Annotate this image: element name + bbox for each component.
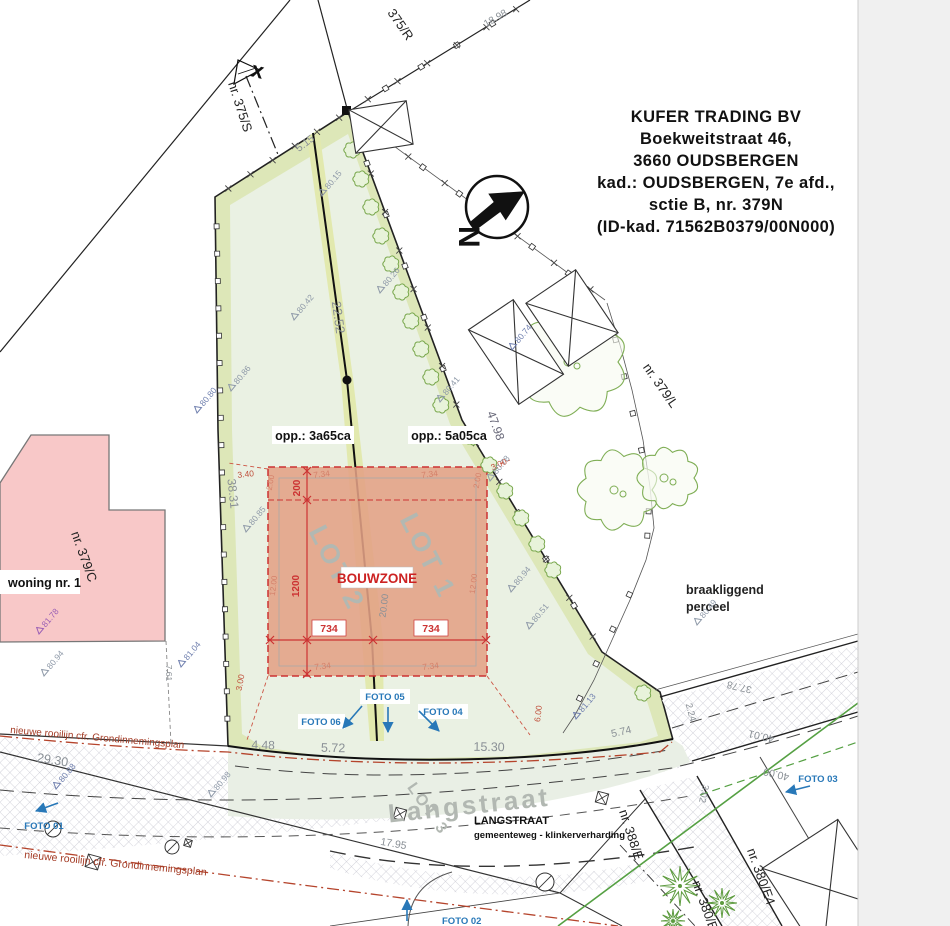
bush-icon bbox=[635, 685, 651, 701]
bush-icon bbox=[393, 284, 409, 300]
fence-post bbox=[216, 333, 221, 338]
bz-off-600: 6.00 bbox=[532, 705, 544, 723]
fence-post bbox=[214, 224, 219, 229]
drain-icon bbox=[184, 839, 193, 848]
title-line-4: kad.: OUDSBERGEN, 7e afd., bbox=[597, 174, 835, 192]
fence-post bbox=[218, 388, 223, 393]
site-plan-page: x N KUFER TRADING BV Boekweitstraat 46, … bbox=[0, 0, 950, 926]
conifer-center bbox=[671, 919, 675, 923]
braakliggend-line1: braakliggend bbox=[686, 583, 764, 597]
page-margin bbox=[858, 0, 950, 926]
bush-icon bbox=[513, 510, 529, 526]
bush-icon bbox=[373, 228, 389, 244]
bz-off-340: 3.40 bbox=[237, 468, 255, 480]
fence-post bbox=[219, 470, 224, 475]
fence-post bbox=[364, 160, 370, 166]
fence-post bbox=[225, 716, 230, 721]
foto-06-label: FOTO 06 bbox=[301, 717, 340, 728]
drain-icon bbox=[595, 791, 608, 804]
fence-post bbox=[220, 497, 225, 502]
bz-1200: 1200 bbox=[291, 574, 302, 597]
fence-post bbox=[224, 661, 229, 666]
foto-02-label: FOTO 02 bbox=[442, 916, 481, 926]
bush-icon bbox=[353, 171, 369, 187]
bush-icon bbox=[545, 562, 561, 578]
fence-post bbox=[630, 410, 636, 416]
bz-734-tr: 7.34 bbox=[421, 468, 439, 480]
foto-04-label: FOTO 04 bbox=[423, 707, 463, 718]
fence-post bbox=[215, 251, 220, 256]
fence-post bbox=[222, 607, 227, 612]
fence-post bbox=[221, 525, 226, 530]
conifer-center bbox=[678, 884, 682, 888]
bz-734-tl: 7.34 bbox=[313, 468, 331, 480]
title-line-1: KUFER TRADING BV bbox=[631, 108, 801, 126]
woning-label: woning nr. 1 bbox=[7, 576, 81, 590]
bush-icon bbox=[403, 313, 419, 329]
dim-15-30: 15.30 bbox=[473, 740, 505, 755]
dim-5-72: 5.72 bbox=[321, 741, 346, 755]
fence-post bbox=[222, 579, 227, 584]
fence-post bbox=[215, 278, 220, 283]
bush-icon bbox=[423, 369, 439, 385]
street-type-label: gemeenteweg - klinkerverharding bbox=[474, 830, 625, 841]
fence-post bbox=[645, 533, 650, 538]
bush-icon bbox=[497, 483, 513, 499]
fence-post bbox=[402, 263, 408, 269]
opp-lot1-label: opp.: 5a05ca bbox=[411, 429, 488, 443]
foto-05-label: FOTO 05 bbox=[365, 692, 405, 703]
bush-icon bbox=[413, 341, 429, 357]
opp-lot2-label: opp.: 3a65ca bbox=[275, 429, 352, 443]
fence-post bbox=[223, 634, 228, 639]
fence-post bbox=[217, 361, 222, 366]
bush-icon bbox=[529, 536, 545, 552]
title-line-2: Boekweitstraat 46, bbox=[640, 130, 792, 148]
north-letter: N bbox=[452, 226, 485, 248]
bz-734-bl: 7.34 bbox=[314, 660, 332, 672]
title-line-5: sctie B, nr. 379N bbox=[649, 196, 783, 214]
fence-post bbox=[638, 447, 644, 453]
fence-post bbox=[221, 552, 226, 557]
building-under-construction-1 bbox=[349, 101, 413, 154]
dim-4-48: 4.48 bbox=[251, 738, 275, 753]
title-line-6: (ID-kad. 71562B0379/00N000) bbox=[597, 218, 835, 236]
bouwzone-label: BOUWZONE bbox=[337, 571, 417, 586]
bz-734r: 734 bbox=[422, 623, 440, 635]
bz-734l: 734 bbox=[320, 623, 338, 635]
fence-post bbox=[216, 306, 221, 311]
dim-7-61: 7.61 bbox=[164, 665, 174, 682]
fence-post bbox=[218, 415, 223, 420]
foto-03-label: FOTO 03 bbox=[798, 774, 837, 785]
bz-200: 200 bbox=[292, 479, 303, 496]
fence-post bbox=[219, 443, 224, 448]
survey-point-dot bbox=[343, 376, 352, 385]
site-plan-canvas: x N KUFER TRADING BV Boekweitstraat 46, … bbox=[0, 0, 950, 926]
bush-icon bbox=[363, 199, 379, 215]
street-name-label: LANGSTRAAT bbox=[474, 815, 549, 827]
bz-734-br: 7.34 bbox=[422, 660, 440, 672]
fence-post bbox=[421, 314, 427, 320]
conifer-center bbox=[720, 901, 724, 905]
title-line-3: 3660 OUDSBERGEN bbox=[633, 152, 799, 170]
bush-icon bbox=[433, 397, 449, 413]
fence-post bbox=[224, 689, 229, 694]
foto-01-label: FOTO 01 bbox=[24, 821, 64, 832]
